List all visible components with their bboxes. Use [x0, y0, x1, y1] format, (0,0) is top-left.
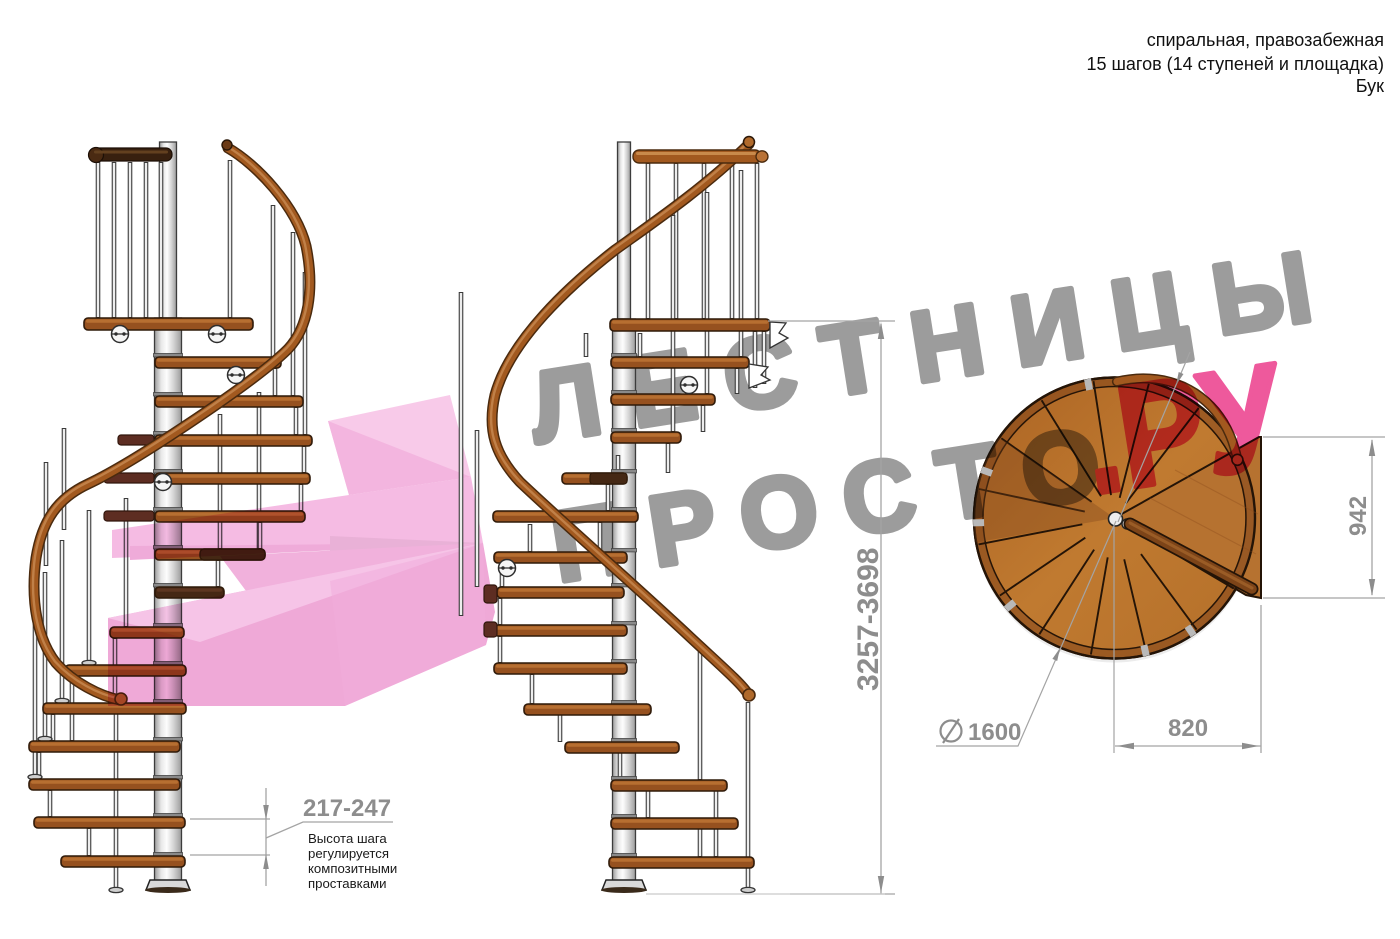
svg-text:спиральная, правозабежная: спиральная, правозабежная	[1147, 30, 1384, 50]
svg-text:820: 820	[1168, 715, 1208, 742]
svg-text:проставками: проставками	[308, 876, 386, 891]
svg-text:217-247: 217-247	[303, 795, 391, 822]
svg-text:1600: 1600	[968, 719, 1021, 746]
svg-text:942: 942	[1345, 496, 1372, 536]
svg-text:регулируется: регулируется	[308, 846, 389, 861]
svg-text:15 шагов (14 ступеней и площад: 15 шагов (14 ступеней и площадка)	[1086, 54, 1384, 74]
svg-text:3257-3698: 3257-3698	[852, 548, 885, 691]
svg-text:Бук: Бук	[1356, 76, 1384, 96]
svg-text:Высота шага: Высота шага	[308, 831, 387, 846]
svg-text:композитными: композитными	[308, 861, 397, 876]
svg-text:.РУ: .РУ	[1071, 332, 1296, 525]
